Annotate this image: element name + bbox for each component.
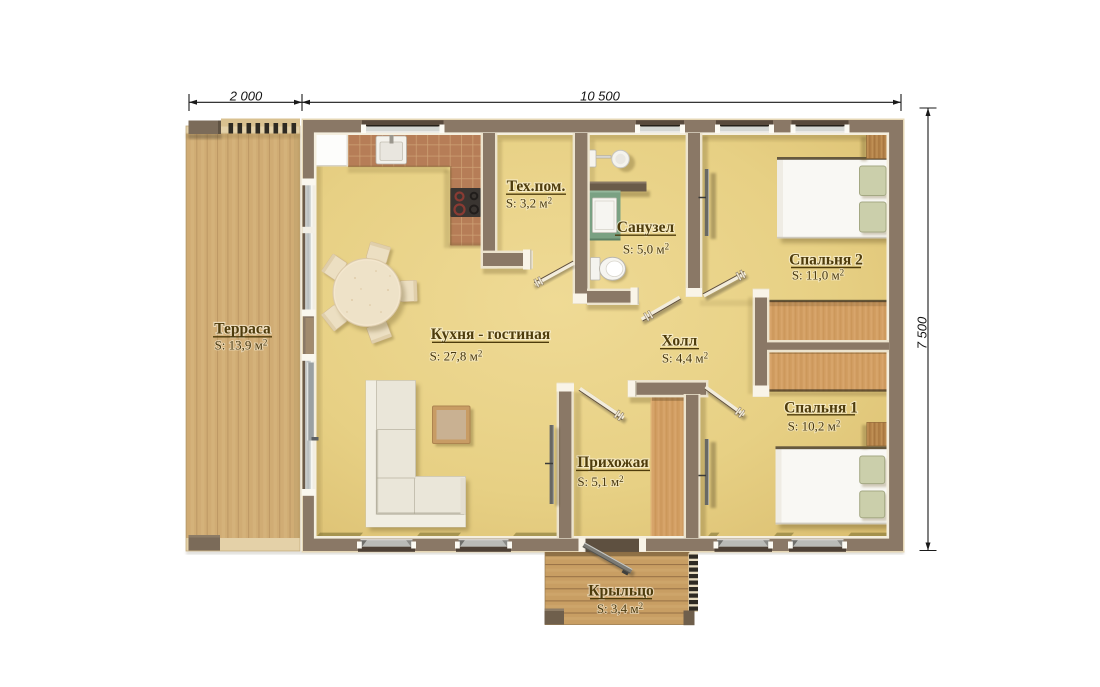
svg-text:S: 11,0 м2: S: 11,0 м2 <box>792 268 844 283</box>
svg-text:10 500: 10 500 <box>580 89 621 104</box>
svg-text:Спальня 1: Спальня 1 <box>784 399 858 416</box>
svg-text:S: 5,1 м2: S: 5,1 м2 <box>577 474 623 489</box>
svg-text:S: 3,4 м2: S: 3,4 м2 <box>597 601 643 616</box>
svg-text:Терраса: Терраса <box>214 321 271 338</box>
svg-text:S: 27,8 м2: S: 27,8 м2 <box>430 349 483 364</box>
svg-text:Спальня 2: Спальня 2 <box>789 252 863 269</box>
svg-text:Крыльцо: Крыльцо <box>588 583 654 600</box>
svg-text:Холл: Холл <box>662 333 698 350</box>
svg-text:S: 10,2 м2: S: 10,2 м2 <box>788 419 841 434</box>
svg-text:Санузел: Санузел <box>617 219 675 236</box>
svg-text:S: 4,4 м2: S: 4,4 м2 <box>662 351 708 366</box>
svg-text:Прихожая: Прихожая <box>577 454 649 471</box>
svg-text:S: 5,0 м2: S: 5,0 м2 <box>623 242 669 257</box>
svg-text:S: 3,2 м2: S: 3,2 м2 <box>506 196 552 211</box>
svg-text:7 500: 7 500 <box>915 316 930 349</box>
svg-text:Тех.пом.: Тех.пом. <box>507 178 566 195</box>
svg-text:S: 13,9 м2: S: 13,9 м2 <box>215 338 268 353</box>
svg-text:2 000: 2 000 <box>229 89 263 104</box>
svg-text:Кухня - гостиная: Кухня - гостиная <box>431 326 550 343</box>
